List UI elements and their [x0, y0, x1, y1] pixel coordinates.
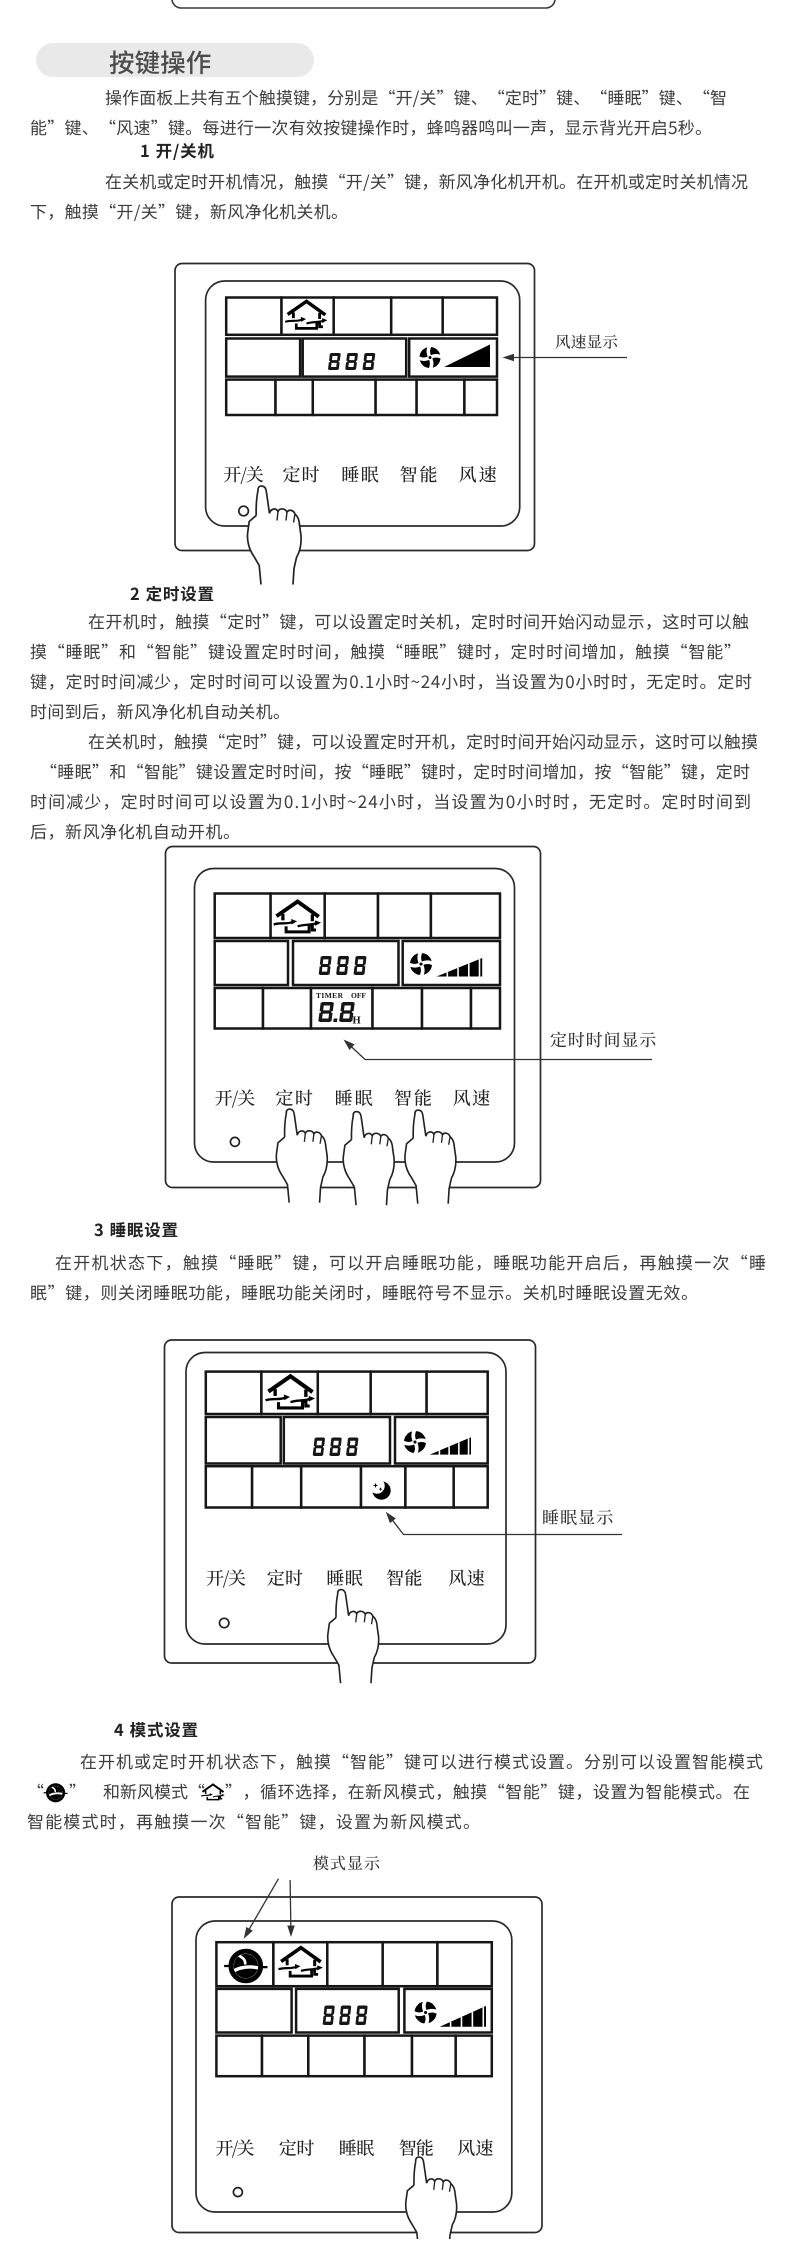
svg-text:OFF: OFF [351, 991, 366, 1000]
svg-text:H: H [353, 1016, 361, 1027]
svg-text:TIMER: TIMER [316, 991, 344, 1000]
